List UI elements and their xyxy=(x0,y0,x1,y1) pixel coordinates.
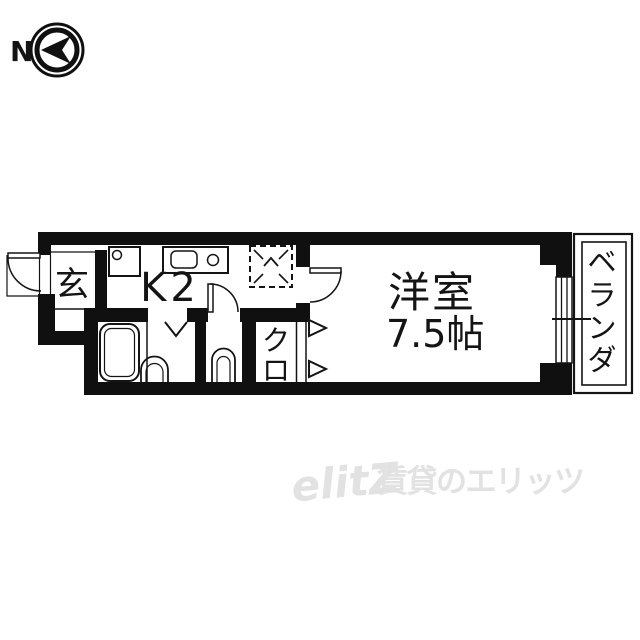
window-icon xyxy=(552,277,591,363)
toilet-icon xyxy=(212,349,235,383)
wall-toilet-closet xyxy=(242,322,256,382)
wall-room-divider-lower xyxy=(296,303,310,322)
stove-burner-icon xyxy=(113,251,122,260)
kitchen-label: K2 xyxy=(140,265,200,311)
floorplan-image: N xyxy=(0,0,640,640)
room-door-leaf xyxy=(310,268,341,273)
sliding-door-arrow-top-icon xyxy=(309,320,326,336)
entrance-door-leaf xyxy=(8,253,40,258)
wall-top xyxy=(38,232,572,245)
wall-genkan-kitchen xyxy=(95,250,107,310)
toilet-bowl-outline xyxy=(212,349,235,383)
closet-label-char-1: ク xyxy=(262,324,290,357)
bathtub-rim xyxy=(105,329,135,377)
folding-door-icon xyxy=(165,322,187,336)
bathroom xyxy=(100,322,187,382)
north-indicator: N xyxy=(10,24,83,76)
wall-mid-left xyxy=(84,308,148,322)
closet-label-char-2: ロ xyxy=(262,354,290,387)
entrance-door-swing-arc xyxy=(8,258,41,291)
toilet-door-leaf xyxy=(208,284,213,312)
washbasin-icon xyxy=(141,357,168,383)
closet-room: ク ロ xyxy=(262,320,326,387)
toilet-door-icon xyxy=(208,284,238,312)
western-room: 洋室 7.5帖 xyxy=(386,268,484,356)
western-room-size: 7.5帖 xyxy=(386,312,484,356)
wall-room-divider-upper xyxy=(296,245,310,267)
room-door-swing-arc xyxy=(310,271,341,302)
veranda-label-char-1: ベ xyxy=(587,245,616,279)
compass-icon xyxy=(31,24,83,76)
wall-left-upper xyxy=(38,232,51,255)
toilet-door-swing-arc xyxy=(210,284,238,312)
veranda-label-char-2: ラ xyxy=(587,278,616,312)
western-room-label: 洋室 xyxy=(388,268,476,317)
washer-space-icon xyxy=(250,246,292,287)
washbasin-inner-line xyxy=(146,364,163,383)
genkan-label: 玄 xyxy=(55,265,89,305)
veranda-label-char-3: ン xyxy=(587,311,616,345)
entrance-door-icon xyxy=(7,253,51,296)
burner-icon xyxy=(208,255,219,266)
sliding-door-arrow-bottom-icon xyxy=(309,361,326,377)
room-door-icon xyxy=(310,268,341,302)
genkan-room: 玄 xyxy=(51,252,95,309)
wall-bath-toilet xyxy=(195,322,206,382)
veranda-label-char-4: ダ xyxy=(587,343,616,377)
floor-plan: 玄 K2 xyxy=(7,232,632,395)
wall-bottom xyxy=(84,382,572,395)
watermark: elitZ 賃貸のエリッツ xyxy=(289,453,583,511)
wall-right-upper xyxy=(556,232,572,277)
pillar-bottom-right xyxy=(540,363,556,382)
veranda: ベ ラ ン ダ xyxy=(574,234,632,393)
wall-right-lower xyxy=(556,363,572,395)
pillar-top-right xyxy=(540,245,556,265)
watermark-brand-text: 賃貸のエリッツ xyxy=(376,464,584,500)
floorplan-svg: N xyxy=(0,0,640,640)
